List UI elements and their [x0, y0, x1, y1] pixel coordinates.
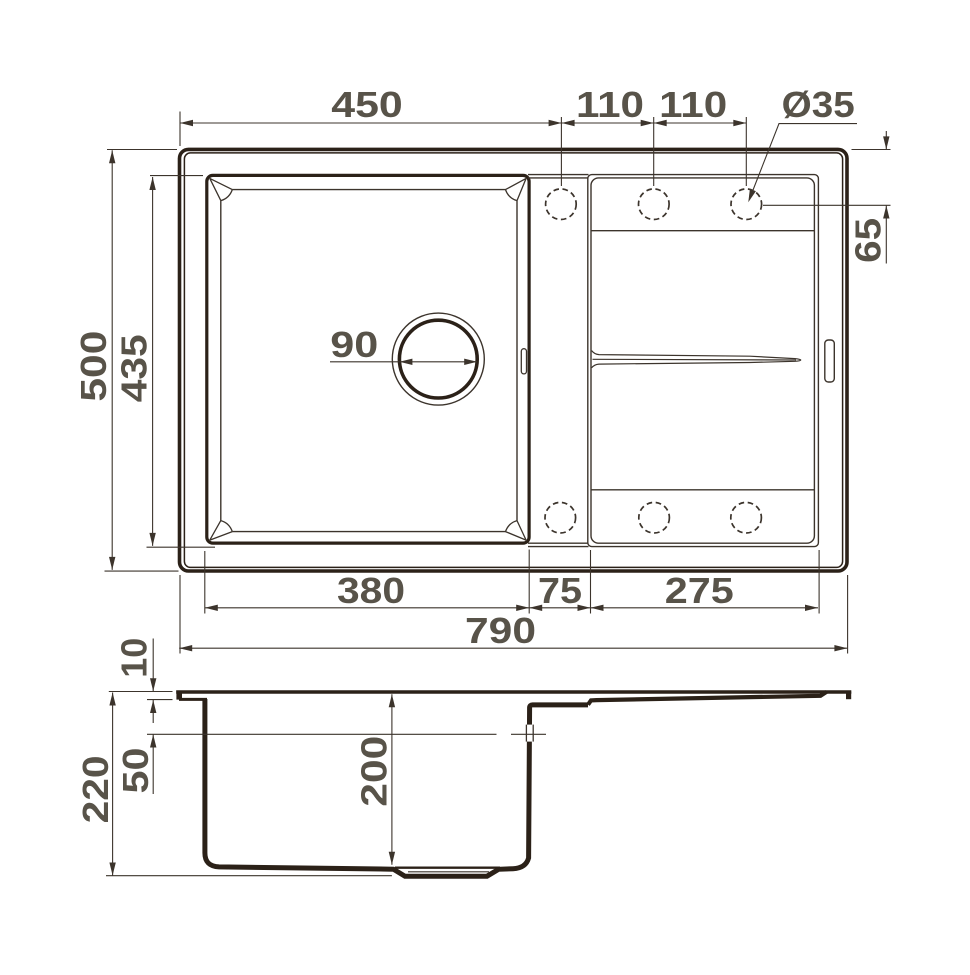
svg-text:90: 90: [330, 324, 378, 365]
svg-text:110: 110: [576, 84, 644, 125]
svg-text:110: 110: [659, 84, 727, 125]
svg-text:50: 50: [115, 748, 156, 794]
svg-text:790: 790: [465, 610, 536, 651]
svg-text:Ø35: Ø35: [782, 84, 855, 125]
svg-text:65: 65: [847, 218, 888, 263]
svg-text:200: 200: [354, 736, 395, 807]
svg-text:220: 220: [75, 755, 116, 823]
svg-text:435: 435: [113, 334, 154, 402]
svg-text:275: 275: [665, 570, 734, 611]
svg-text:380: 380: [337, 570, 405, 611]
svg-text:450: 450: [331, 84, 403, 125]
svg-text:500: 500: [73, 331, 114, 402]
svg-text:75: 75: [538, 570, 582, 611]
svg-text:10: 10: [113, 638, 154, 678]
